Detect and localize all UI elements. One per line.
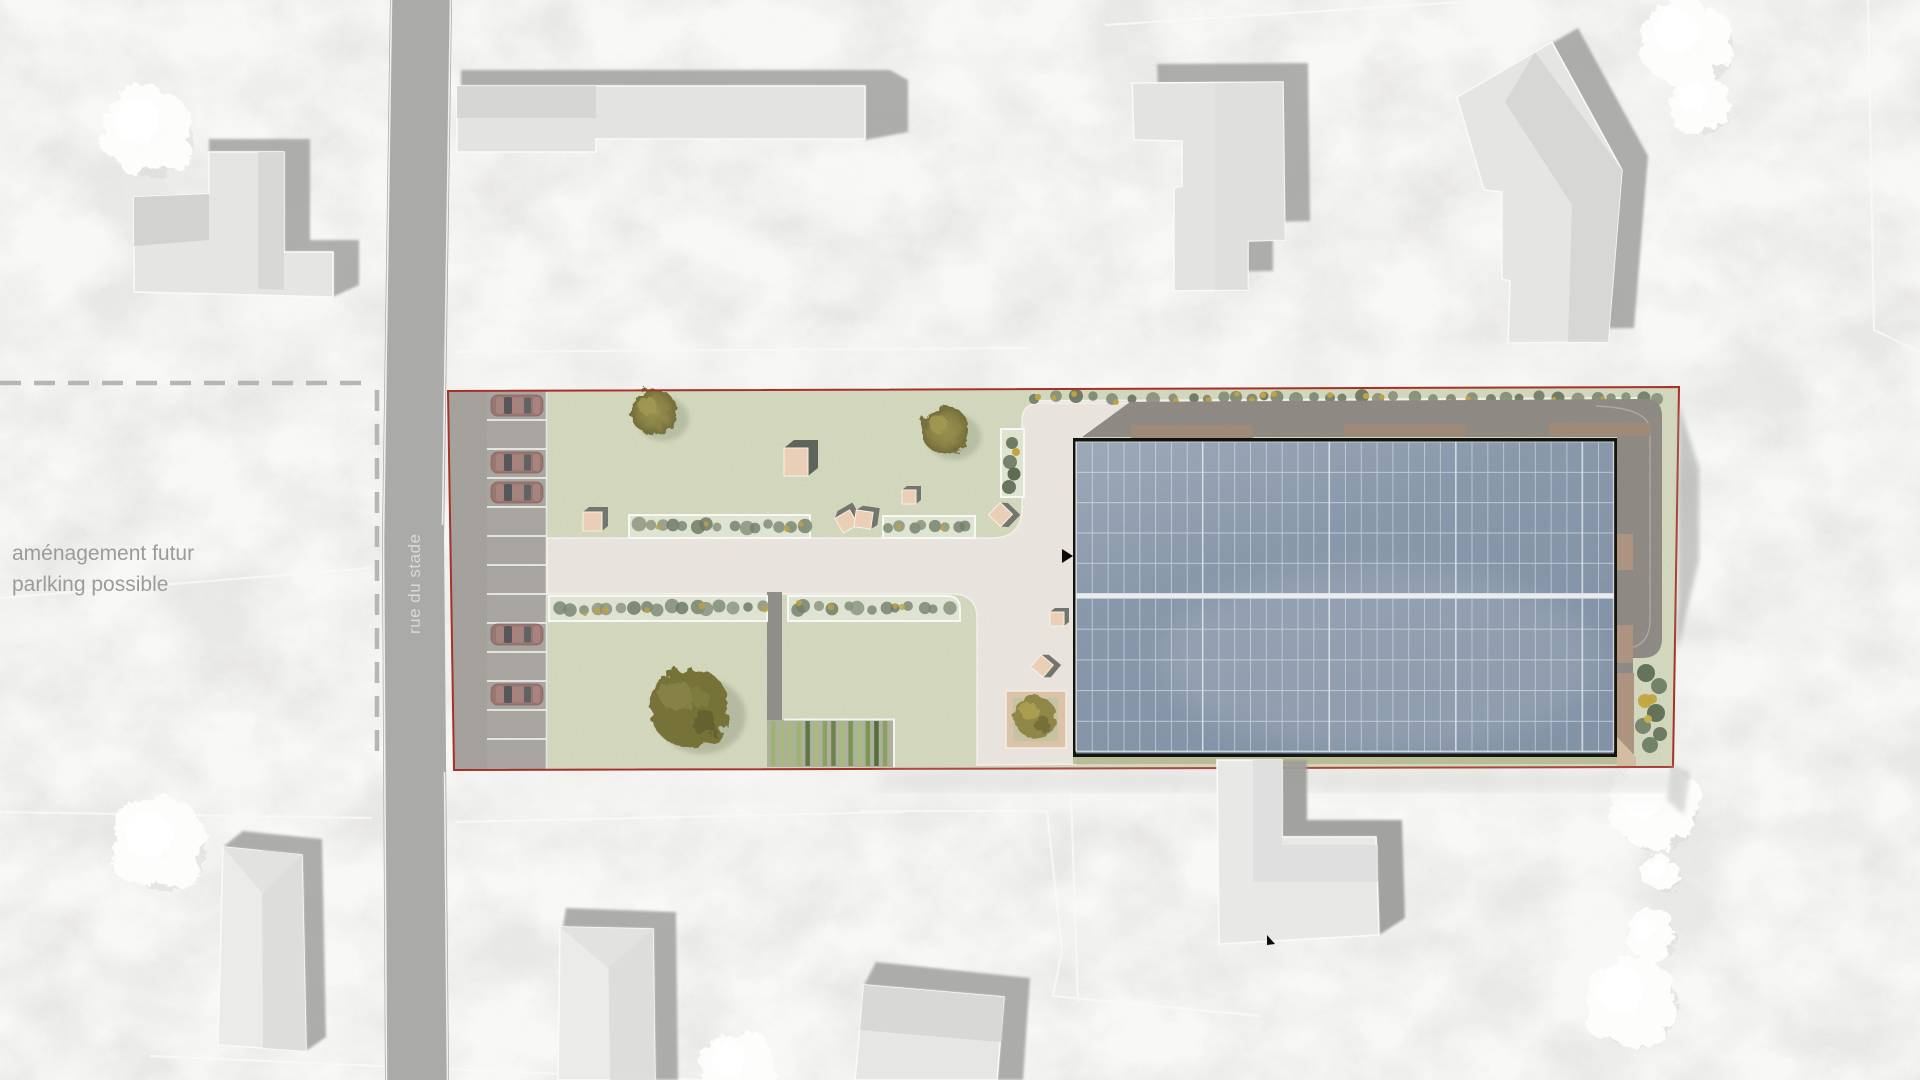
svg-text:parlking possible: parlking possible [12, 573, 168, 596]
svg-text:rue du stade: rue du stade [405, 533, 424, 634]
svg-text:aménagement futur: aménagement futur [12, 542, 194, 565]
